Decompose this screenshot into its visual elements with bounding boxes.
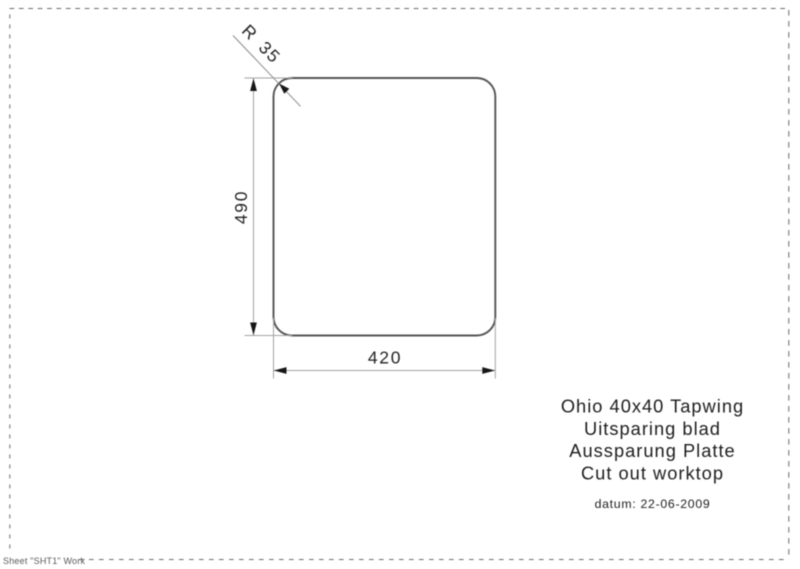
svg-text:Sheet "SHT1" Work: Sheet "SHT1" Work [3, 556, 85, 566]
svg-text:490: 490 [231, 190, 251, 224]
svg-text:420: 420 [368, 348, 402, 368]
svg-text:Uitsparing blad: Uitsparing blad [584, 418, 721, 439]
svg-text:Ohio 40x40 Tapwing: Ohio 40x40 Tapwing [561, 395, 744, 416]
svg-text:Cut out worktop: Cut out worktop [581, 462, 724, 483]
svg-text:Aussparung Platte: Aussparung Platte [569, 440, 735, 461]
svg-text:datum: 22-06-2009: datum: 22-06-2009 [595, 497, 711, 511]
